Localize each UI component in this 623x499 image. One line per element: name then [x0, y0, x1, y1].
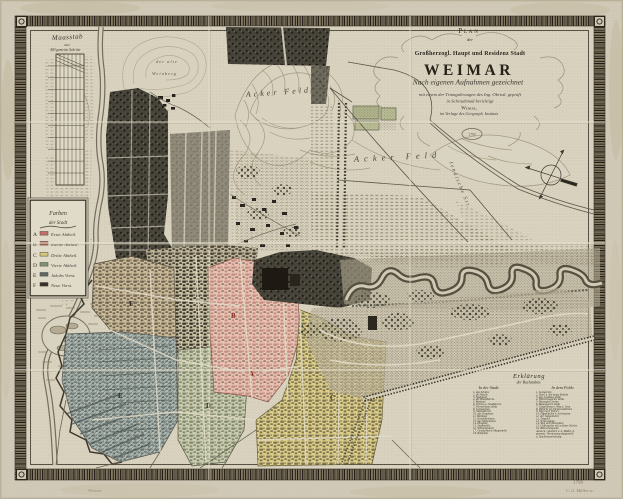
svg-text:Dritte Abtheil.: Dritte Abtheil.	[50, 253, 77, 258]
svg-text:Vierte Abtheil.: Vierte Abtheil.	[51, 263, 77, 268]
svg-text:E: E	[118, 392, 123, 400]
svg-text:im Verlage des Geograph. Insti: im Verlage des Geograph. Instituts	[440, 111, 499, 116]
svg-text:in Schraubmaß berichtigt: in Schraubmaß berichtigt	[447, 99, 495, 104]
svg-text:Großherzogl. Haupt und Residen: Großherzogl. Haupt und Residenz Stadt	[415, 51, 525, 57]
svg-text:Weinberg: Weinberg	[152, 71, 177, 76]
svg-text:Farben: Farben	[48, 211, 67, 217]
svg-text:Weimar: Weimar	[88, 488, 102, 493]
svg-text:F: F	[33, 283, 36, 289]
svg-text:Erste Abtheil.: Erste Abtheil.	[50, 232, 76, 237]
svg-text:A: A	[33, 232, 37, 238]
svg-text:F: F	[129, 299, 134, 308]
svg-text:D: D	[33, 263, 37, 269]
svg-text:mit einem der Triangulirungen: mit einem der Triangulirungen des Ing. O…	[419, 92, 522, 97]
svg-text:a. Quellwasserleitung: a. Quellwasserleitung	[536, 434, 562, 438]
svg-text:über: über	[64, 43, 71, 47]
svg-text:der: der	[467, 37, 473, 42]
svg-text:C: C	[33, 253, 37, 259]
svg-text:B: B	[231, 312, 236, 320]
svg-text:1799: 1799	[573, 481, 584, 486]
svg-text:Neue Vorst.: Neue Vorst.	[50, 283, 72, 288]
svg-text:18. Rollplatz: 18. Rollplatz	[473, 431, 489, 435]
svg-text:C. G. Müller sc.: C. G. Müller sc.	[566, 488, 594, 493]
svg-text:1799: 1799	[468, 133, 475, 137]
svg-text:Nach eigenen Aufnahmen gezeich: Nach eigenen Aufnahmen gezeichnet	[412, 78, 524, 87]
svg-text:C: C	[330, 394, 335, 402]
svg-text:400 gemeine Schritte: 400 gemeine Schritte	[50, 48, 81, 52]
svg-text:In dem Felde.: In dem Felde.	[550, 385, 574, 390]
svg-text:Erklärung: Erklärung	[512, 373, 545, 380]
svg-text:Maasstab: Maasstab	[51, 32, 84, 42]
svg-text:der Buchstaben.: der Buchstaben.	[517, 381, 542, 385]
svg-text:Jakobs Vorst.: Jakobs Vorst.	[51, 273, 76, 278]
svg-text:der Stadt: der Stadt	[49, 221, 68, 226]
svg-text:WEIMAR: WEIMAR	[424, 62, 514, 79]
svg-text:Plan: Plan	[458, 28, 479, 35]
svg-text:der alte: der alte	[156, 59, 178, 64]
